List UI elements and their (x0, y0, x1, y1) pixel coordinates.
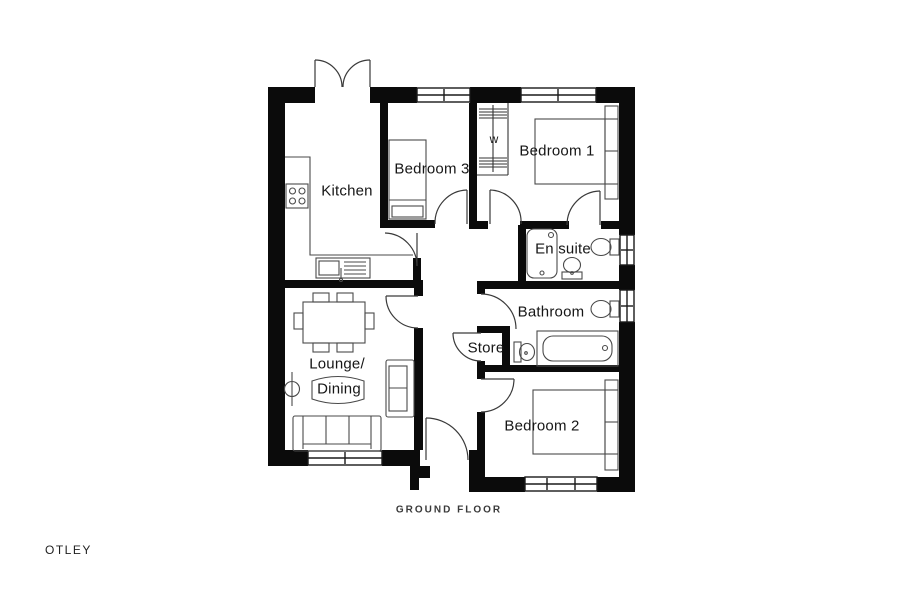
french-doors (315, 60, 370, 87)
bedroom2-label: Bedroom 2 (504, 418, 579, 435)
bedroom3-label: Bedroom 3 (394, 161, 469, 178)
bedroom3-door (435, 190, 467, 224)
ensuite-window (620, 235, 634, 265)
hob-icon (286, 184, 308, 208)
bathroom-basin-icon (591, 301, 619, 318)
floor-lamp-icon (285, 372, 300, 406)
bedroom1-door (490, 190, 521, 224)
lounge-door (386, 296, 418, 328)
bedroom2-window (525, 477, 597, 491)
ensuite-label: En suite (535, 241, 591, 258)
bathroom-label: Bathroom (518, 304, 585, 321)
plan-title: OTLEY (45, 543, 92, 557)
front-door (426, 418, 468, 460)
bedroom1-label: Bedroom 1 (519, 143, 594, 160)
ensuite-basin-icon (591, 239, 619, 256)
loveseat-icon (386, 360, 414, 417)
bathroom-window (620, 290, 634, 322)
ensuite-door (567, 191, 600, 225)
lounge-window (308, 451, 382, 465)
single-bed-icon (389, 140, 426, 219)
kitchen-label: Kitchen (321, 183, 372, 200)
dining-label: Dining (317, 381, 361, 398)
floorplan-page: Kitchen Bedroom 3 Bedroom 1 w En suite B… (0, 0, 900, 600)
floor-name-label: GROUND FLOOR (396, 505, 502, 516)
bedroom1-window (521, 88, 596, 102)
dining-table-icon (294, 293, 374, 352)
wardrobe-label: w (490, 132, 499, 146)
lounge-label: Lounge/ (309, 356, 365, 373)
store-label: Store (468, 340, 505, 357)
bath-icon (537, 331, 618, 366)
kitchen-door (385, 233, 417, 266)
bathroom-door (481, 294, 516, 329)
bedroom3-window (417, 88, 470, 102)
sofa-icon (293, 416, 381, 451)
bedroom2-door (481, 379, 514, 412)
bathroom-toilet-icon (514, 342, 535, 362)
ensuite-toilet-icon (562, 258, 582, 280)
kitchen-sink-icon (316, 258, 370, 282)
